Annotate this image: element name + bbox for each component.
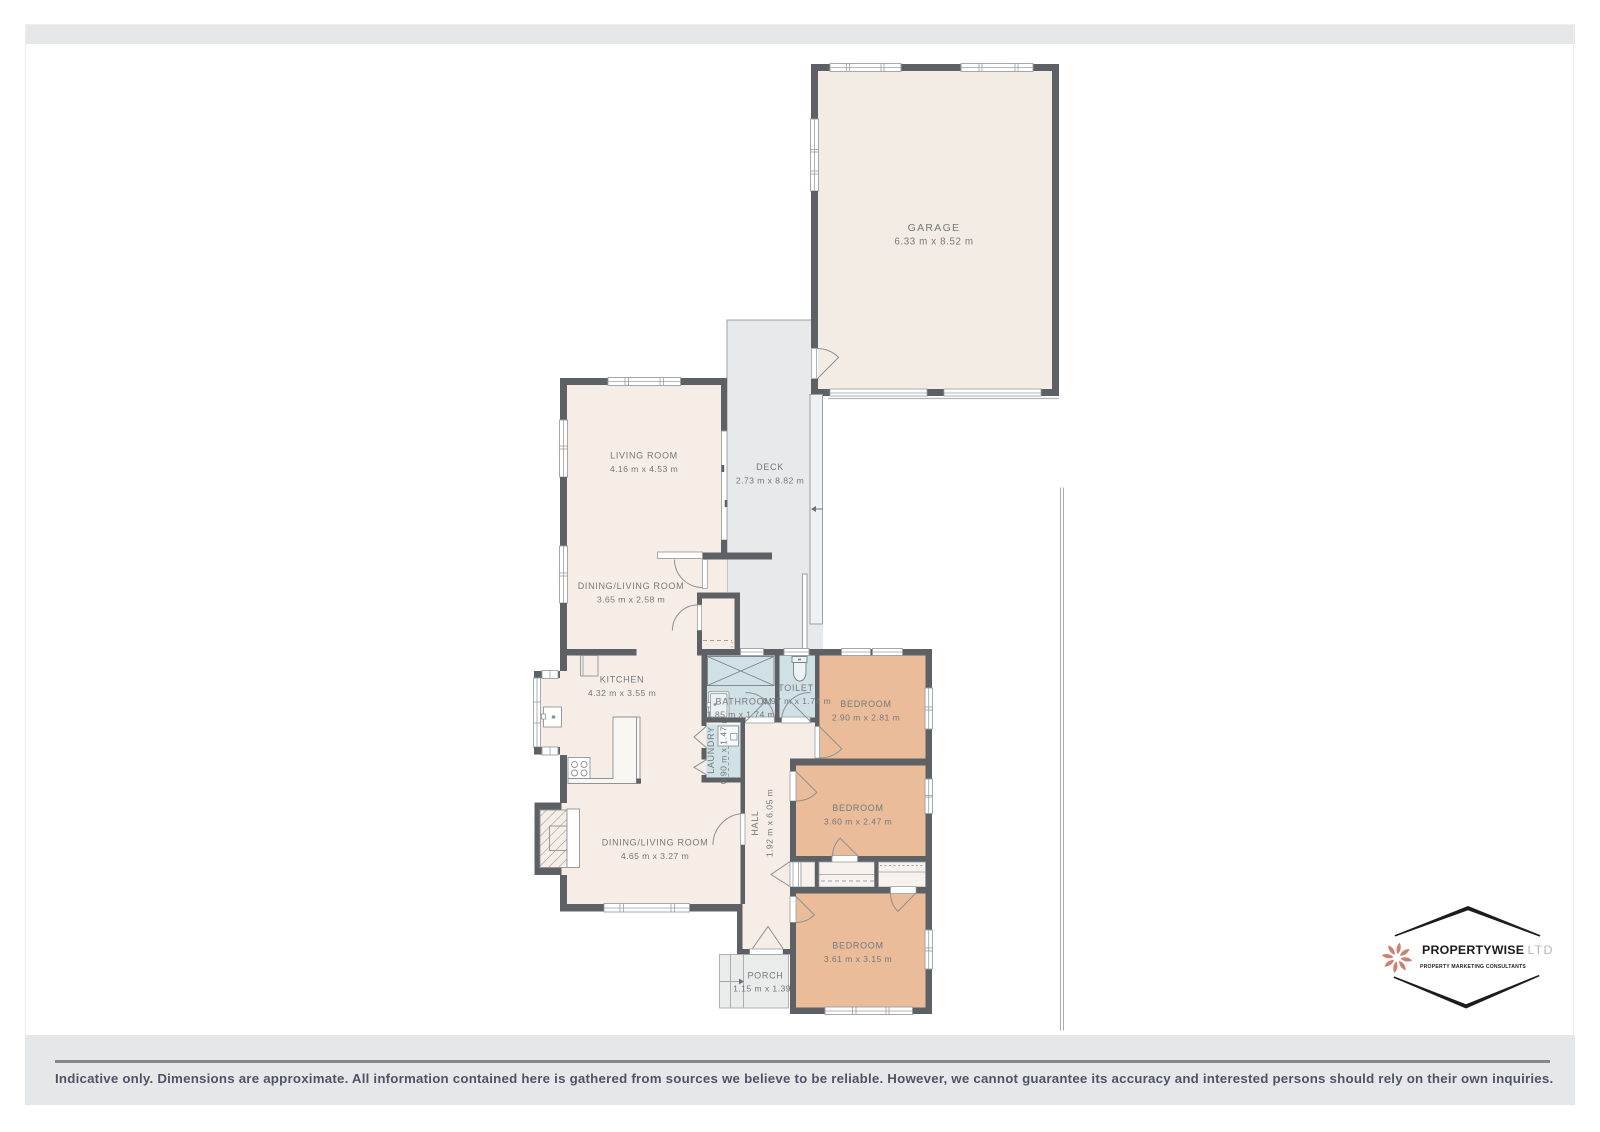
svg-text:1.92 m x 6.05 m: 1.92 m x 6.05 m (765, 789, 775, 857)
svg-text:2.90 m x 2.81 m: 2.90 m x 2.81 m (832, 713, 900, 723)
svg-text:BEDROOM: BEDROOM (832, 803, 883, 813)
svg-text:LAUNDRY: LAUNDRY (706, 726, 716, 774)
svg-text:DINING/LIVING ROOM: DINING/LIVING ROOM (602, 838, 709, 848)
svg-text:HALL: HALL (750, 810, 760, 835)
svg-text:3.61 m x 3.15 m: 3.61 m x 3.15 m (824, 954, 892, 964)
svg-text:3.60 m x 2.47 m: 3.60 m x 2.47 m (824, 817, 892, 827)
svg-text:PORCH: PORCH (747, 971, 783, 981)
svg-text:KITCHEN: KITCHEN (600, 675, 644, 685)
svg-text:TOILET: TOILET (778, 683, 814, 693)
svg-text:LIVING ROOM: LIVING ROOM (610, 451, 678, 461)
svg-text:3.65 m x 2.58 m: 3.65 m x 2.58 m (597, 595, 665, 605)
svg-text:GARAGE: GARAGE (908, 222, 961, 234)
svg-text:6.33 m x 8.52 m: 6.33 m x 8.52 m (894, 237, 973, 248)
svg-text:4.16 m x 4.53 m: 4.16 m x 4.53 m (610, 464, 678, 474)
svg-text:2.73 m x 8.82 m: 2.73 m x 8.82 m (736, 476, 804, 486)
svg-text:1.85 m x 1.74 m: 1.85 m x 1.74 m (707, 710, 775, 720)
svg-text:4.32 m x 3.55 m: 4.32 m x 3.55 m (588, 688, 656, 698)
svg-text:PROPERTY MARKETING CONSULTANTS: PROPERTY MARKETING CONSULTANTS (1420, 964, 1526, 970)
svg-text:BEDROOM: BEDROOM (840, 699, 891, 709)
svg-text:DINING/LIVING ROOM: DINING/LIVING ROOM (578, 581, 685, 591)
svg-text:BEDROOM: BEDROOM (832, 941, 883, 951)
svg-text:PROPERTYWISE: PROPERTYWISE (1422, 943, 1524, 957)
svg-text:0.97 m x 1.74 m: 0.97 m x 1.74 m (763, 696, 831, 706)
svg-text:LTD: LTD (1528, 943, 1554, 957)
svg-text:4.65 m x 3.27 m: 4.65 m x 3.27 m (621, 851, 689, 861)
svg-text:0.90 m x 1.47 m: 0.90 m x 1.47 m (719, 716, 729, 784)
svg-text:DECK: DECK (756, 462, 784, 472)
svg-text:1.15 m x 1.39: 1.15 m x 1.39 (733, 984, 791, 994)
